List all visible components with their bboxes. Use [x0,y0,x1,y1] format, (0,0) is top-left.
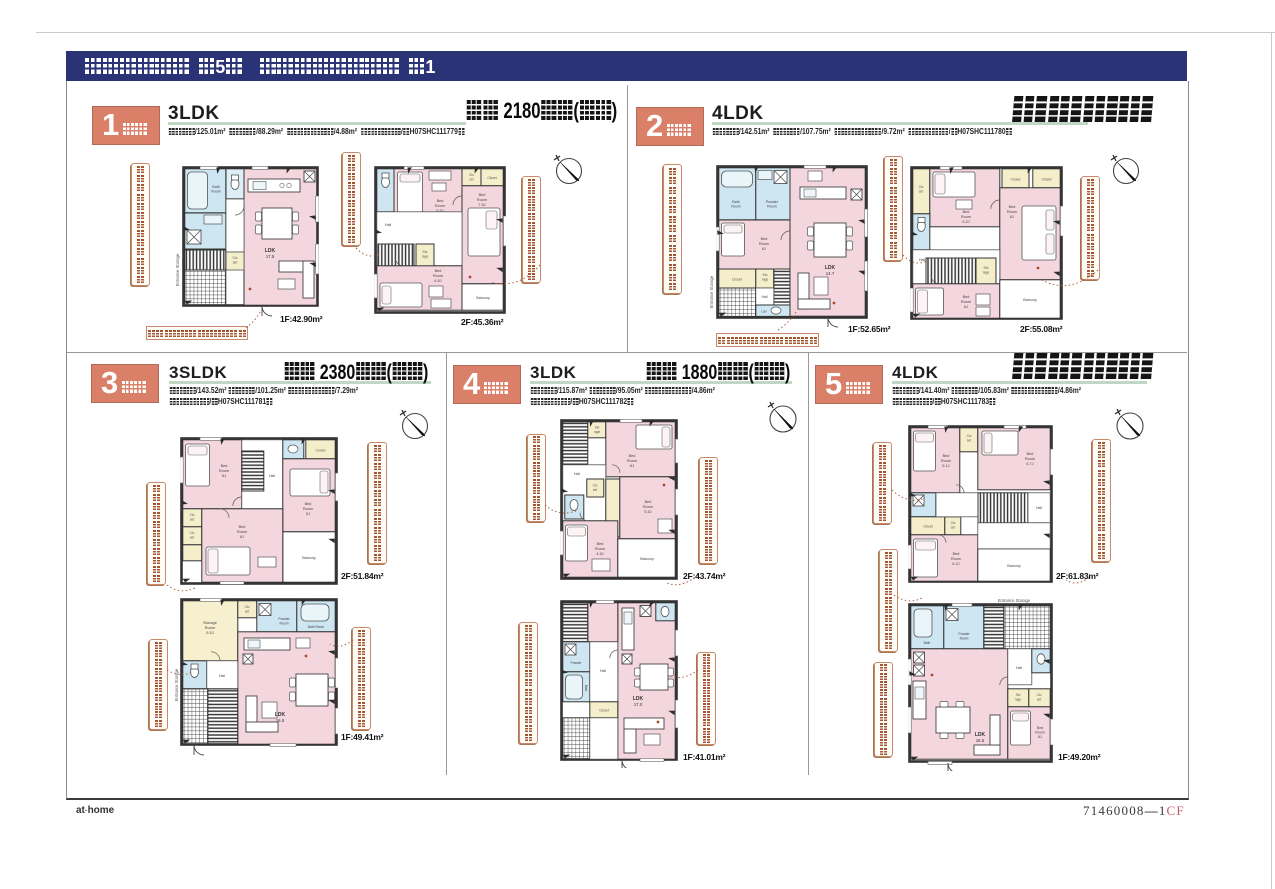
svg-text:Sto: Sto [595,426,600,430]
svg-text:Entrance Storage: Entrance Storage [709,275,714,308]
svg-text:6J: 6J [630,464,634,468]
svg-text:Entrance Storage: Entrance Storage [175,253,180,286]
svg-text:6J: 6J [222,474,226,478]
svg-text:Closet: Closet [316,449,326,453]
svg-text:Bed: Bed [943,454,950,458]
svg-text:Bed: Bed [221,464,228,468]
svg-text:Room: Room [1035,731,1045,735]
svg-text:Room: Room [219,469,229,473]
svg-text:Entrance Storage: Entrance Storage [174,668,179,701]
svg-text:Bed: Bed [629,454,636,458]
svg-text:Bed: Bed [1027,452,1034,456]
svg-text:Clo: Clo [967,434,972,438]
svg-text:15.5: 15.5 [976,738,985,743]
svg-text:Hall: Hall [269,474,275,478]
svg-text:Room: Room [627,459,637,463]
svg-text:Bed: Bed [1037,726,1043,730]
svg-text:rage: rage [594,430,601,434]
svg-text:Entrance Storage: Entrance Storage [998,598,1031,603]
svg-text:set: set [967,439,971,443]
svg-text:6J: 6J [1038,735,1042,739]
